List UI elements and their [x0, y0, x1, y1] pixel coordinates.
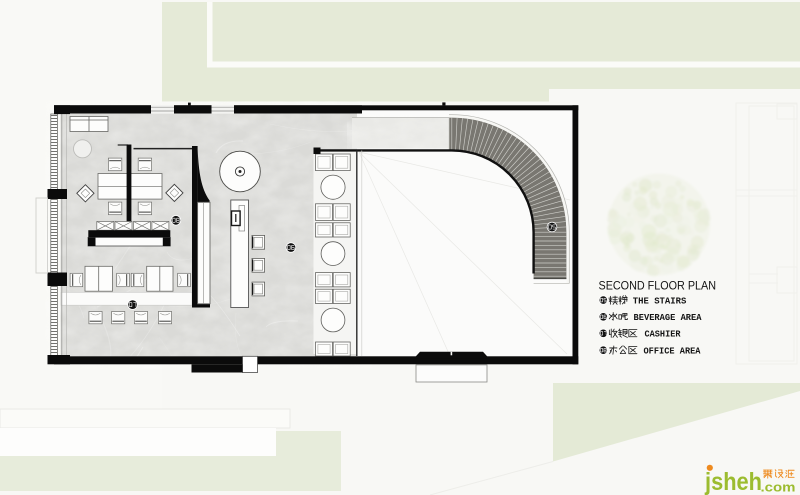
- svg-text:OFFICE AREA: OFFICE AREA: [644, 346, 702, 356]
- svg-text:BEVERAGE AREA: BEVERAGE AREA: [634, 313, 703, 323]
- svg-text:SECOND FLOOR PLAN: SECOND FLOOR PLAN: [599, 279, 717, 293]
- svg-text:THE STAIRS: THE STAIRS: [633, 296, 687, 306]
- svg-text:jsheh: jsheh: [704, 468, 762, 495]
- svg-text:CASHIER: CASHIER: [645, 330, 682, 340]
- svg-text:.com: .com: [761, 480, 796, 495]
